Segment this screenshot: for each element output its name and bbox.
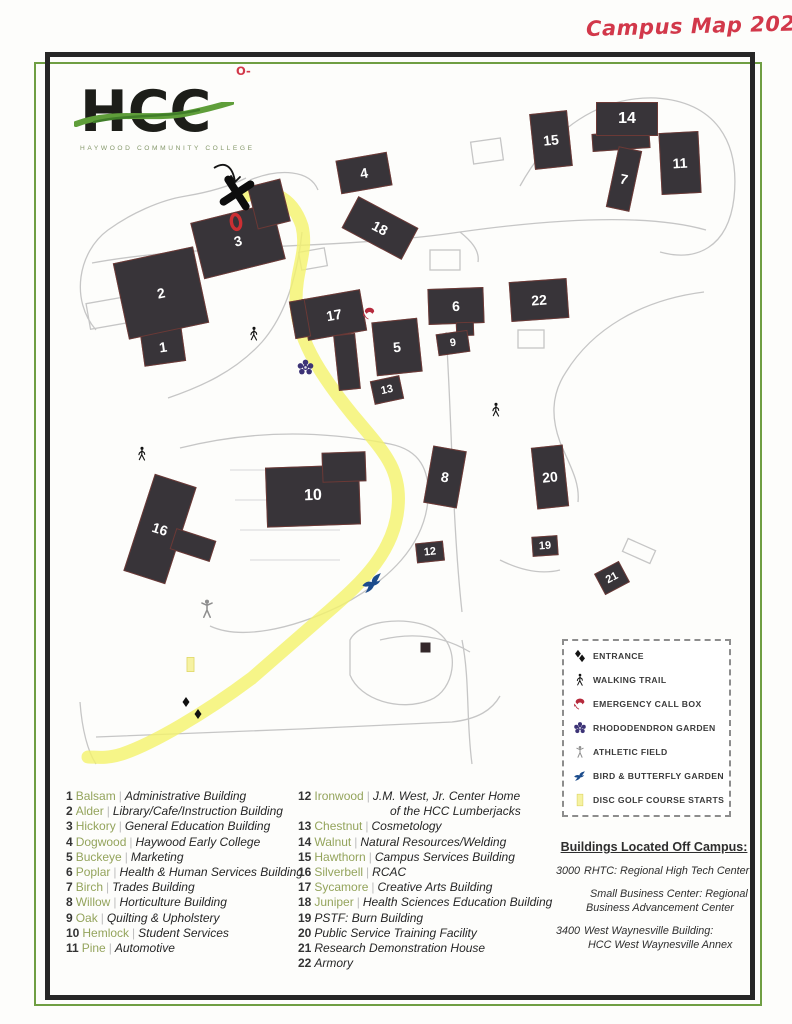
off-campus-text-line2: HCC West Waynesville Annex [556, 938, 752, 952]
list-description: Health & Human Services Building [120, 865, 303, 879]
list-number: 14 [298, 835, 311, 849]
entrance-icon [573, 649, 587, 663]
list-description: RCAC [372, 865, 406, 879]
list-number: 12 [298, 789, 311, 803]
legend-label: WALKING TRAIL [593, 675, 666, 685]
list-description: Health Sciences Education Building [363, 895, 552, 909]
list-description: PSTF: Burn Building [314, 911, 423, 925]
entrance-diamond-icon [192, 708, 204, 720]
list-tree-name: Buckeye [76, 850, 122, 864]
list-number: 20 [298, 926, 311, 940]
walking-icon [488, 402, 504, 418]
list-description: Research Demonstration House [314, 941, 485, 955]
building-14: 14Walnut|Natural Resources/Welding [298, 835, 550, 850]
callbox-icon [573, 697, 587, 711]
legend-item: ATHLETIC FIELD [573, 745, 725, 759]
list-description: Student Services [138, 926, 229, 940]
list-description: Haywood Early College [136, 835, 261, 849]
off-campus-title: Buildings Located Off Campus: [556, 840, 752, 854]
walking-icon [246, 326, 262, 342]
list-number: 1 [66, 789, 73, 803]
entrance-diamond-icon [180, 696, 192, 708]
list-number: 6 [66, 865, 73, 879]
list-tree-name: Pine [82, 941, 106, 955]
building-17: 17Sycamore|Creative Arts Building [298, 880, 550, 895]
list-number: 3 [66, 819, 73, 833]
building-7: 7Birch|Trades Building [66, 880, 298, 895]
building-11: 11Pine|Automotive [66, 941, 298, 956]
building-16: 16Silverbell|RCAC [298, 865, 550, 880]
list-tree-name: Juniper [314, 895, 353, 909]
list-number: 10 [66, 926, 79, 940]
list-number: 7 [66, 880, 73, 894]
list-number: 8 [66, 895, 73, 909]
list-description: Natural Resources/Welding [360, 835, 506, 849]
off-campus-text-line2: Business Advancement Center [586, 901, 752, 915]
building-5: 5Buckeye|Marketing [66, 850, 298, 865]
list-number: 21 [298, 941, 311, 955]
building-19: 19PSTF: Burn Building [298, 911, 550, 926]
legend-label: EMERGENCY CALL BOX [593, 699, 702, 709]
list-number: 13 [298, 819, 311, 833]
list-tree-name: Hemlock [82, 926, 129, 940]
list-description: Cosmetology [372, 819, 442, 833]
legend-item: RHODODENDRON GARDEN [573, 721, 725, 735]
list-description: Library/Cafe/Instruction Building [113, 804, 283, 818]
list-description: Automotive [115, 941, 175, 955]
walking-icon [573, 673, 587, 687]
millhouse-icon [418, 640, 433, 655]
list-tree-name: Dogwood [76, 835, 127, 849]
bird-icon [358, 568, 387, 597]
building-3: 3Hickory|General Education Building [66, 819, 298, 834]
legend-item: WALKING TRAIL [573, 673, 725, 687]
off-campus-section: Buildings Located Off Campus: 3000RHTC: … [556, 840, 752, 961]
list-tree-name: Hawthorn [314, 850, 365, 864]
walking-icon [134, 446, 150, 462]
athletic-icon [196, 598, 218, 620]
map-legend: ENTRANCE WALKING TRAIL EMERGENCY CALL BO… [562, 639, 731, 817]
callbox-icon [362, 306, 377, 321]
list-number: 5 [66, 850, 73, 864]
list-number: 19 [298, 911, 311, 925]
building-10: 10Hemlock|Student Services [66, 926, 298, 941]
list-tree-name: Sycamore [314, 880, 368, 894]
list-number: 4 [66, 835, 73, 849]
legend-label: ENTRANCE [593, 651, 644, 661]
list-description-line2: of the HCC Lumberjacks [298, 804, 550, 819]
list-number: 16 [298, 865, 311, 879]
legend-item: EMERGENCY CALL BOX [573, 697, 725, 711]
list-description: Marketing [131, 850, 184, 864]
list-tree-name: Willow [76, 895, 111, 909]
list-description: Armory [314, 956, 353, 970]
list-description: Horticulture Building [119, 895, 226, 909]
off-campus-number: 3400 [556, 925, 580, 937]
list-number: 15 [298, 850, 311, 864]
red-oval-icon [224, 210, 247, 233]
disc-golf-icon [182, 656, 199, 673]
list-tree-name: Poplar [76, 865, 111, 879]
list-number: 22 [298, 956, 311, 970]
off-campus-entry: Small Business Center: Regional Business… [556, 887, 752, 915]
off-campus-text: West Waynesville Building: [584, 925, 713, 937]
list-tree-name: Ironwood [314, 789, 363, 803]
legend-label: RHODODENDRON GARDEN [593, 723, 716, 733]
building-12: 12Ironwood|J.M. West, Jr. Center Home of… [298, 789, 550, 819]
list-tree-name: Silverbell [314, 865, 363, 879]
legend-label: DISC GOLF COURSE STARTS [593, 795, 724, 805]
list-tree-name: Balsam [76, 789, 116, 803]
off-campus-entries: 3000RHTC: Regional High Tech Center Smal… [556, 864, 752, 952]
building-6: 6Poplar|Health & Human Services Building [66, 865, 298, 880]
building-9: 9Oak|Quilting & Upholstery [66, 911, 298, 926]
building-list-right: 12Ironwood|J.M. West, Jr. Center Home of… [298, 789, 550, 971]
building-list-left: 1Balsam|Administrative Building 2Alder|L… [66, 789, 298, 956]
list-number: 11 [66, 941, 79, 955]
list-number: 2 [66, 804, 73, 818]
building-15: 15Hawthorn|Campus Services Building [298, 850, 550, 865]
list-description: Public Service Training Facility [314, 926, 477, 940]
list-description: Trades Building [112, 880, 195, 894]
list-number: 17 [298, 880, 311, 894]
building-8: 8Willow|Horticulture Building [66, 895, 298, 910]
building-20: 20Public Service Training Facility [298, 926, 550, 941]
list-description: General Education Building [125, 819, 270, 833]
building-21: 21Research Demonstration House [298, 941, 550, 956]
scanned-campus-map-page: Campus Map 2024 HCC HAYWOOD COMMUNITY CO… [0, 0, 792, 1024]
list-tree-name: Alder [76, 804, 104, 818]
list-number: 9 [66, 911, 73, 925]
off-campus-text: RHTC: Regional High Tech Center [584, 865, 749, 877]
rhododendron-icon [296, 358, 315, 377]
rhododendron-icon [573, 721, 587, 735]
building-3400: 3400West Waynesville Building: HCC West … [556, 924, 752, 952]
list-description: J.M. West, Jr. Center Home [373, 789, 520, 803]
building-4: 4Dogwood|Haywood Early College [66, 835, 298, 850]
building-18: 18Juniper|Health Sciences Education Buil… [298, 895, 550, 910]
building-1: 1Balsam|Administrative Building [66, 789, 298, 804]
list-tree-name: Birch [76, 880, 103, 894]
list-description: Campus Services Building [375, 850, 515, 864]
x-mark-icon [217, 173, 257, 213]
off-campus-text: Small Business Center: Regional [590, 888, 748, 900]
list-tree-name: Walnut [314, 835, 351, 849]
legend-label: ATHLETIC FIELD [593, 747, 668, 757]
list-description: Administrative Building [125, 789, 246, 803]
list-number: 18 [298, 895, 311, 909]
list-tree-name: Oak [76, 911, 98, 925]
legend-item: DISC GOLF COURSE STARTS [573, 793, 725, 807]
legend-item: ENTRANCE [573, 649, 725, 663]
building-13: 13Chestnut|Cosmetology [298, 819, 550, 834]
list-tree-name: Hickory [76, 819, 116, 833]
list-description: Quilting & Upholstery [107, 911, 220, 925]
off-campus-number: 3000 [556, 865, 580, 877]
athletic-icon [573, 745, 587, 759]
legend-item: BIRD & BUTTERFLY GARDEN [573, 769, 725, 783]
building-3000: 3000RHTC: Regional High Tech Center [556, 864, 752, 878]
disc-golf-icon [573, 793, 587, 807]
building-2: 2Alder|Library/Cafe/Instruction Building [66, 804, 298, 819]
bird-icon [573, 769, 587, 783]
list-description: Creative Arts Building [378, 880, 493, 894]
list-tree-name: Chestnut [314, 819, 362, 833]
legend-label: BIRD & BUTTERFLY GARDEN [593, 771, 724, 781]
building-22: 22Armory [298, 956, 550, 971]
